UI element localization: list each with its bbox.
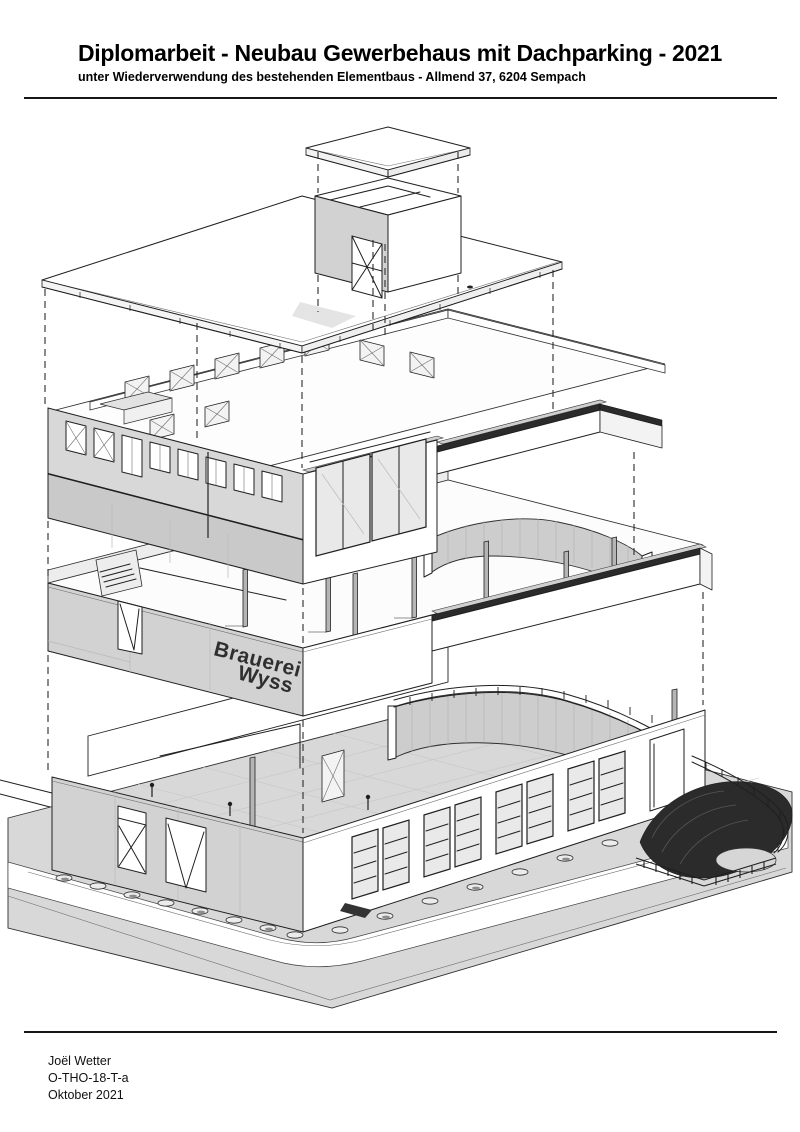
project-code: O-THO-18-T-a: [48, 1070, 129, 1087]
garage-door: [166, 818, 206, 892]
exploded-axonometric-drawing: Brauerei Wyss: [0, 0, 800, 1132]
entry-door: [118, 806, 146, 874]
roof-vent: [467, 286, 473, 289]
braced-frame-panel: [352, 236, 382, 298]
author-name: Joël Wetter: [48, 1053, 129, 1070]
title-block: Joël Wetter O-THO-18-T-a Oktober 2021: [48, 1053, 129, 1104]
middle-window: [118, 601, 142, 654]
drawing-sheet: Diplomarbeit - Neubau Gewerbehaus mit Da…: [0, 0, 800, 1132]
date: Oktober 2021: [48, 1087, 129, 1104]
penthouse-roof-slab: [306, 127, 470, 177]
footer-rule: [24, 1031, 777, 1033]
